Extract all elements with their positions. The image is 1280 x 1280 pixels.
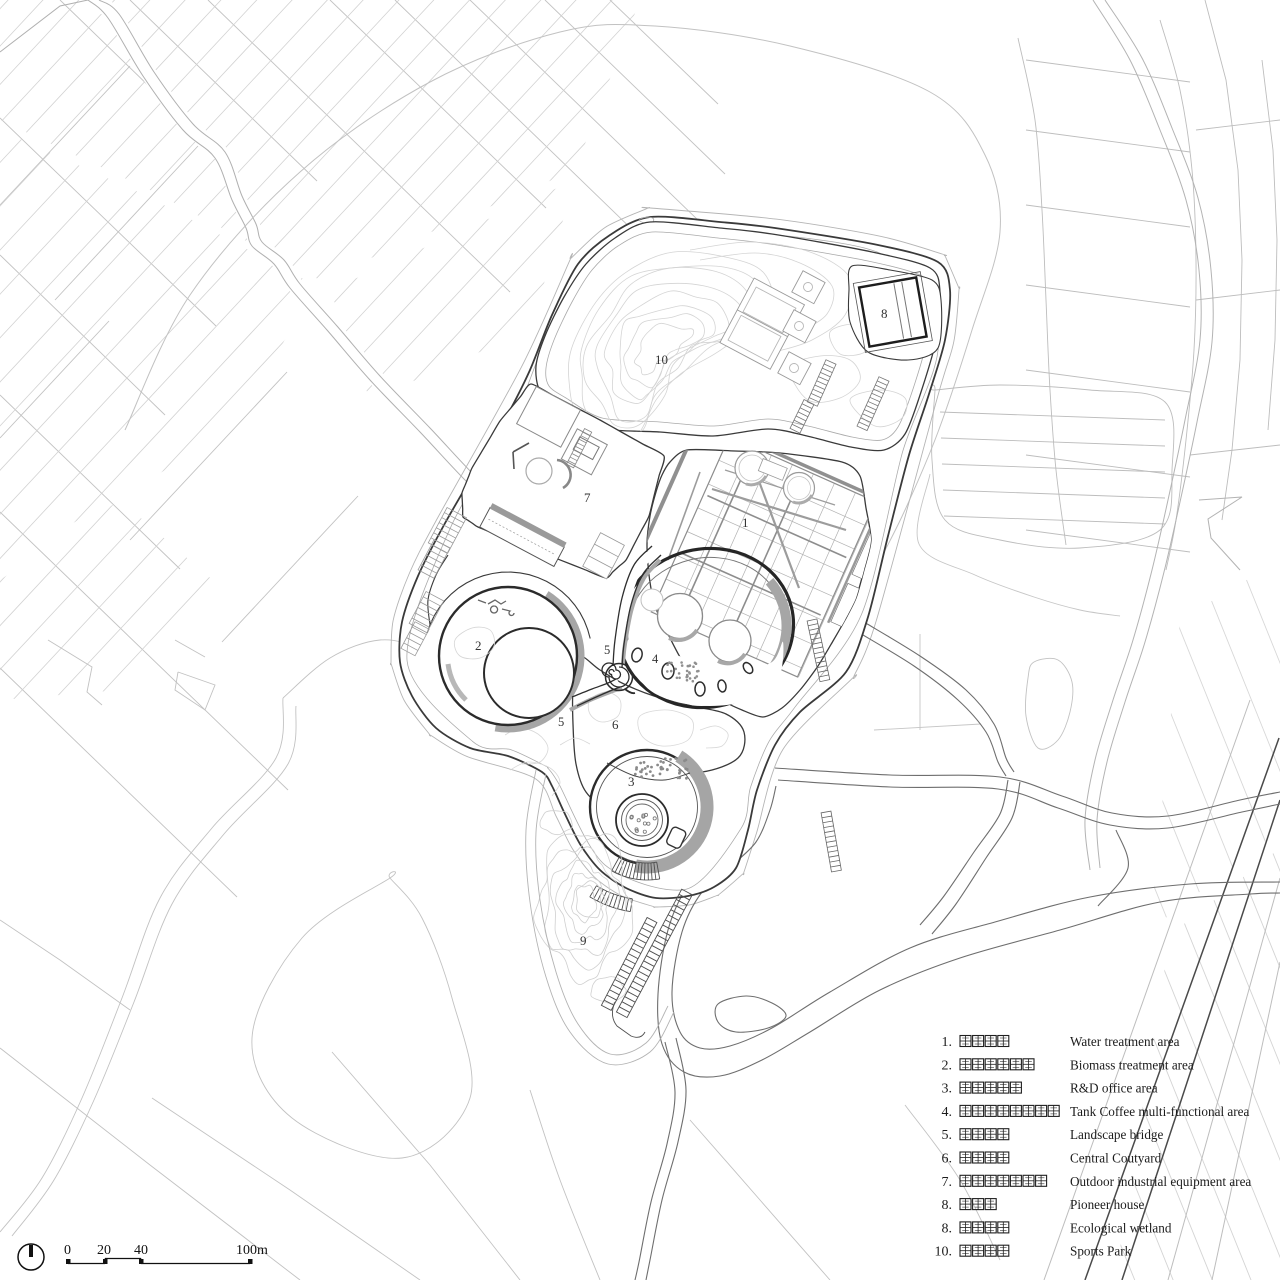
svg-text:8.: 8.: [942, 1221, 953, 1236]
svg-text:8: 8: [881, 306, 888, 321]
svg-text:4.: 4.: [942, 1105, 953, 1120]
svg-text:7: 7: [584, 490, 591, 505]
svg-text:Sports Park: Sports Park: [1070, 1244, 1132, 1259]
svg-text:5.: 5.: [942, 1128, 953, 1143]
svg-text:7.: 7.: [942, 1175, 953, 1190]
svg-text:40: 40: [134, 1243, 148, 1258]
svg-text:9: 9: [580, 933, 587, 948]
svg-text:Landscape bridge: Landscape bridge: [1070, 1127, 1164, 1142]
svg-text:1.: 1.: [942, 1035, 953, 1050]
svg-text:Biomass treatment area: Biomass treatment area: [1070, 1057, 1194, 1072]
svg-text:5: 5: [558, 715, 564, 729]
svg-text:Water treatment area: Water treatment area: [1070, 1034, 1180, 1049]
svg-text:6.: 6.: [942, 1152, 953, 1167]
svg-text:20: 20: [97, 1243, 111, 1258]
svg-text:6: 6: [612, 717, 619, 732]
svg-text:8.: 8.: [942, 1198, 953, 1213]
svg-text:Tank Coffee multi-functional a: Tank Coffee multi-functional area: [1070, 1104, 1250, 1119]
svg-text:2: 2: [475, 638, 482, 653]
svg-text:4: 4: [652, 652, 659, 666]
svg-text:1: 1: [742, 515, 749, 530]
svg-text:3: 3: [628, 774, 635, 789]
svg-text:3.: 3.: [942, 1082, 953, 1097]
svg-text:Ecological wetland: Ecological wetland: [1070, 1220, 1172, 1235]
svg-text:10.: 10.: [935, 1245, 953, 1260]
svg-text:Pioneer house: Pioneer house: [1070, 1197, 1144, 1212]
svg-text:2.: 2.: [942, 1058, 953, 1073]
svg-text:5: 5: [604, 643, 610, 657]
svg-text:Outdoor industrial equipment a: Outdoor industrial equipment area: [1070, 1174, 1251, 1189]
svg-text:Central Coutyard: Central Coutyard: [1070, 1151, 1162, 1166]
svg-text:0: 0: [64, 1243, 71, 1258]
svg-text:R&D office area: R&D office area: [1070, 1081, 1158, 1096]
svg-text:10: 10: [655, 352, 668, 367]
svg-text:100m: 100m: [236, 1243, 268, 1258]
